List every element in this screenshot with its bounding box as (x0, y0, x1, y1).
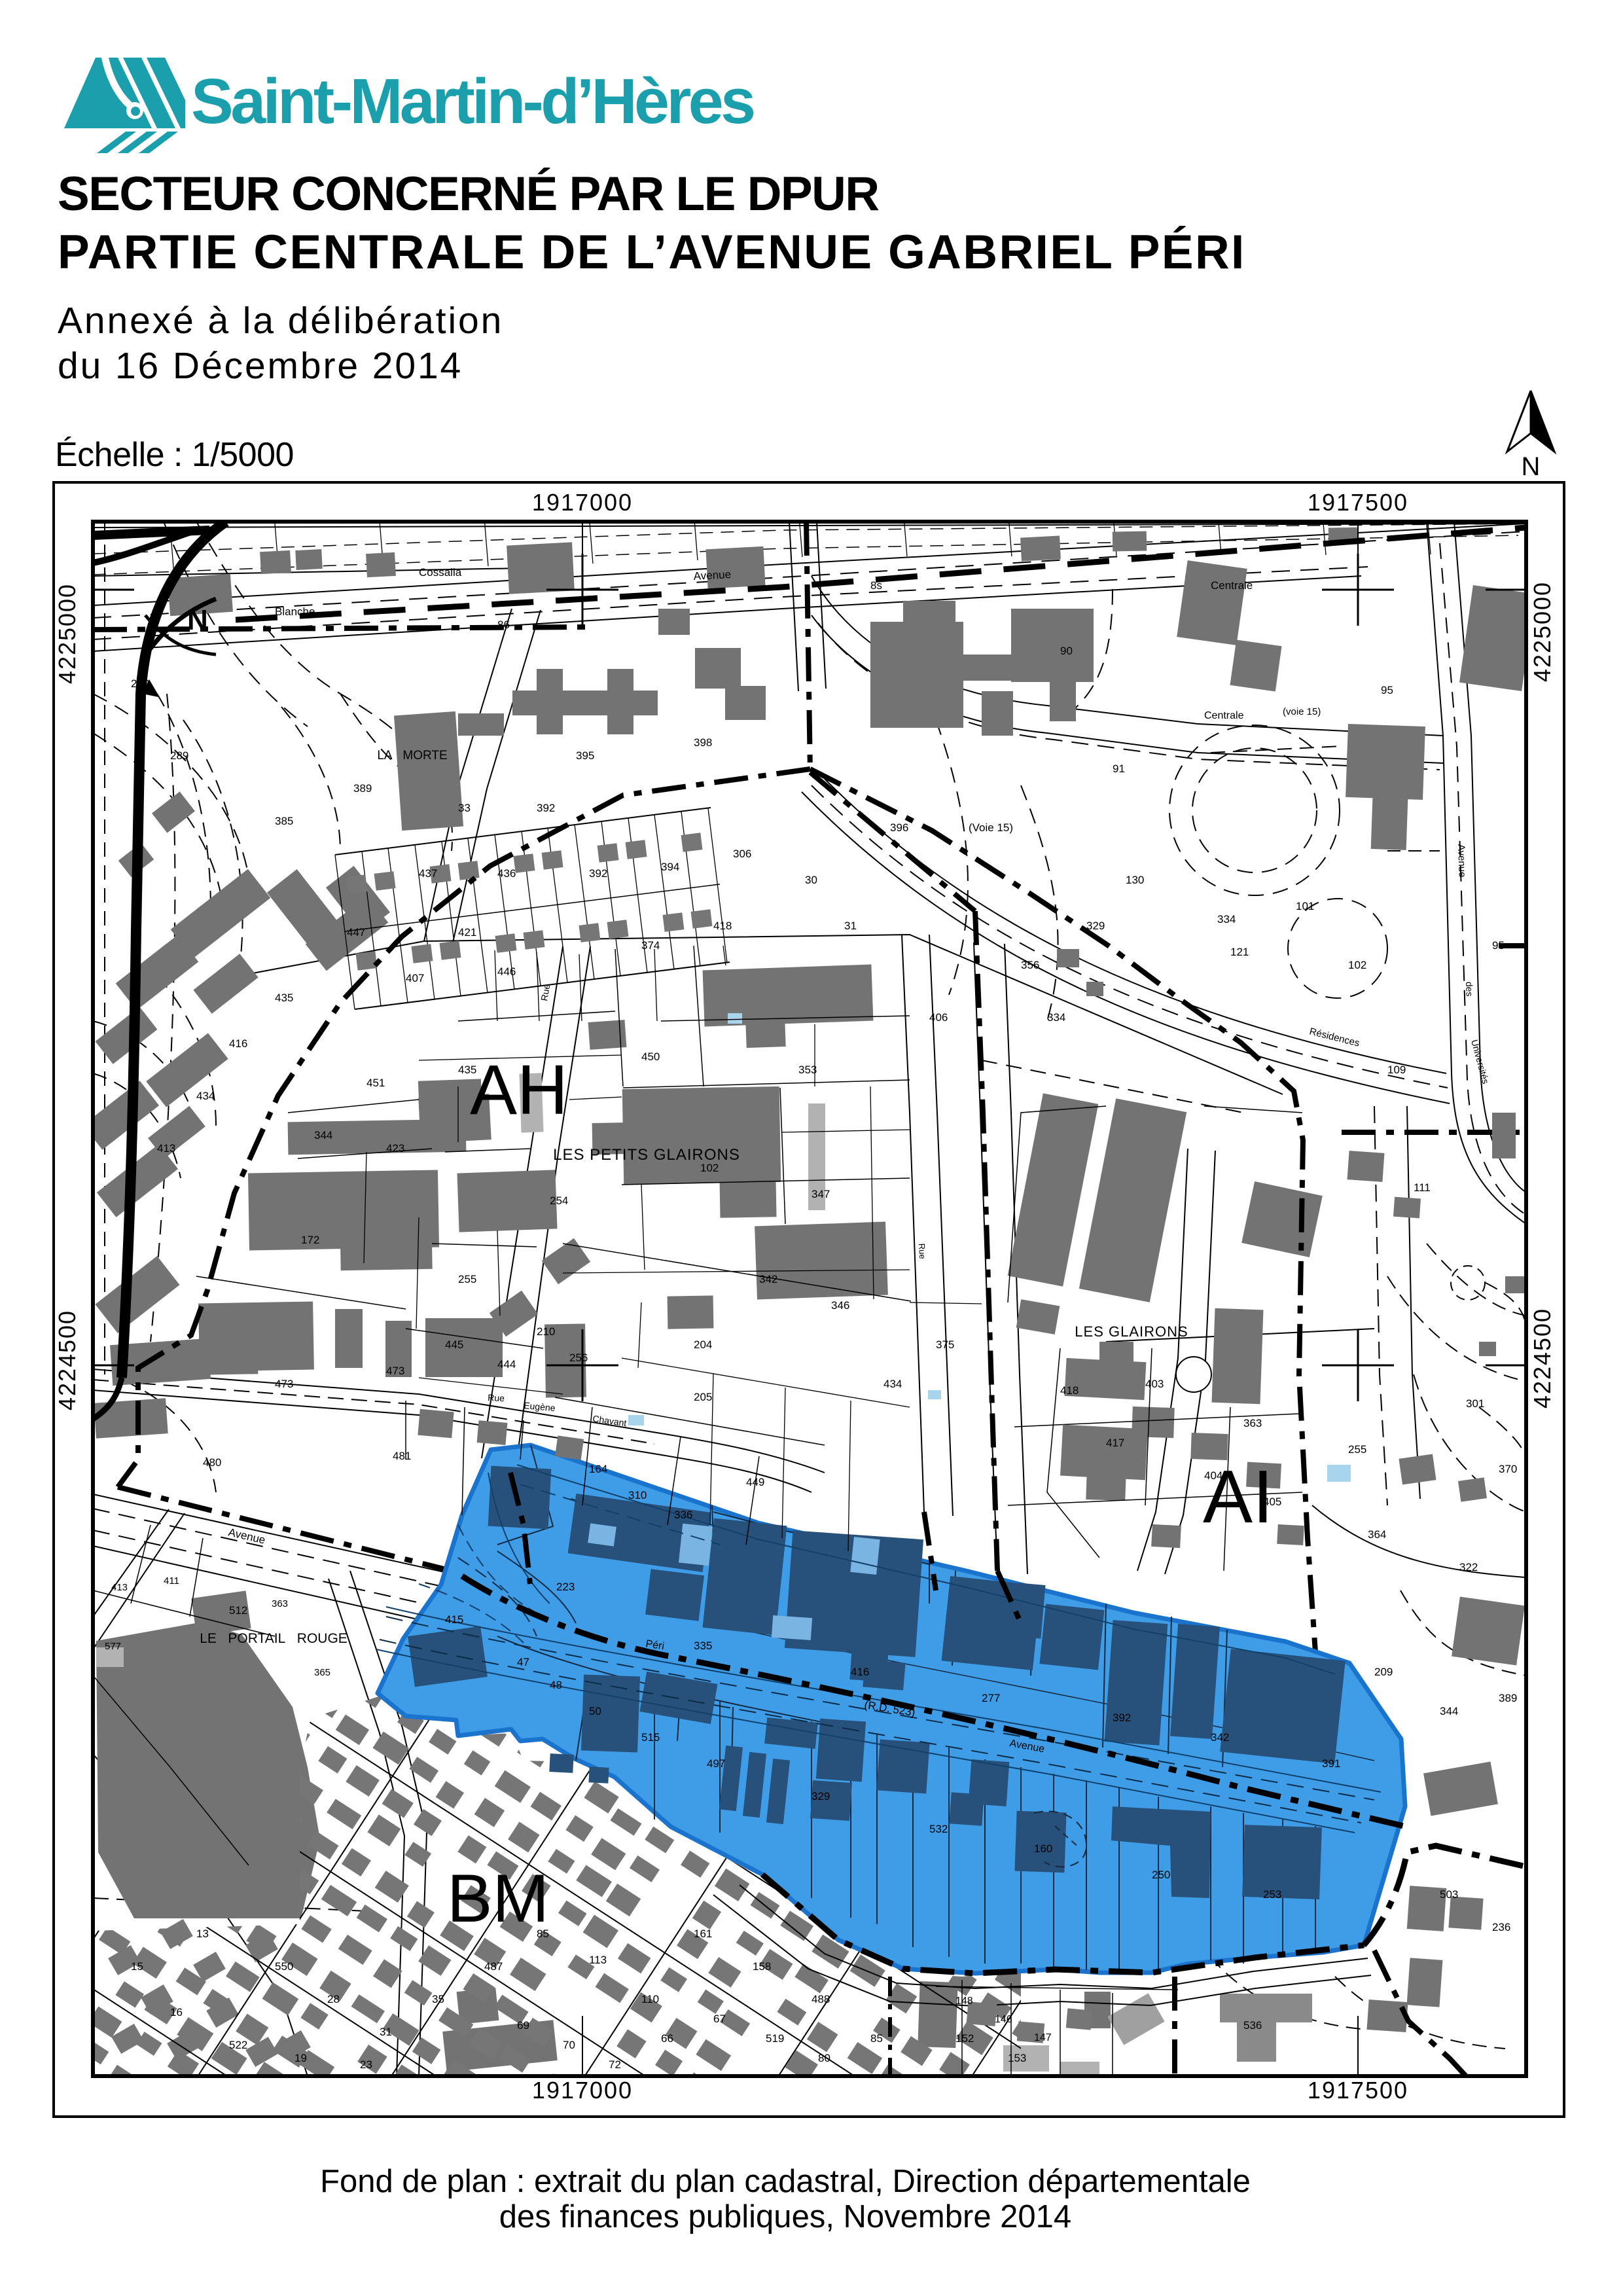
svg-text:160: 160 (1034, 1842, 1052, 1855)
svg-text:204: 204 (694, 1338, 712, 1351)
svg-text:515: 515 (641, 1731, 660, 1744)
svg-text:4224500: 4224500 (1529, 1308, 1556, 1408)
svg-text:446: 446 (497, 965, 516, 978)
svg-text:519: 519 (766, 2032, 784, 2045)
svg-text:310: 310 (628, 1489, 647, 1501)
svg-text:532: 532 (929, 1823, 948, 1835)
svg-text:436: 436 (497, 867, 516, 880)
svg-text:95: 95 (1492, 939, 1505, 952)
svg-text:577: 577 (105, 1641, 121, 1652)
svg-text:363: 363 (1243, 1417, 1262, 1429)
svg-text:15: 15 (131, 1960, 143, 1973)
svg-text:481: 481 (393, 1450, 411, 1462)
svg-text:Rue: Rue (488, 1392, 505, 1403)
svg-text:Annexé à la délibération: Annexé à la délibération (58, 300, 503, 342)
svg-text:161: 161 (694, 1928, 712, 1940)
svg-text:392: 392 (537, 802, 555, 814)
svg-text:Cossalia: Cossalia (419, 566, 462, 579)
svg-text:364: 364 (1368, 1528, 1386, 1541)
svg-text:152: 152 (955, 2032, 974, 2045)
svg-text:31: 31 (380, 2026, 392, 2038)
svg-text:342: 342 (1211, 1731, 1229, 1744)
svg-text:1917500: 1917500 (1308, 489, 1408, 516)
svg-text:256: 256 (569, 1352, 588, 1364)
svg-text:31: 31 (844, 920, 857, 932)
svg-text:254: 254 (550, 1194, 568, 1207)
svg-text:473: 473 (275, 1378, 293, 1390)
svg-text:LA MORTE: LA MORTE (377, 749, 447, 762)
svg-text:Fond de plan : extrait du plan: Fond de plan : extrait du plan cadastral… (320, 2164, 1251, 2199)
svg-text:512: 512 (229, 1604, 247, 1617)
svg-text:30: 30 (805, 874, 817, 886)
svg-text:8s: 8s (870, 579, 882, 592)
svg-text:522: 522 (229, 2039, 247, 2051)
svg-text:356: 356 (1021, 959, 1039, 971)
svg-text:435: 435 (275, 992, 293, 1004)
svg-text:223: 223 (556, 1581, 575, 1593)
svg-text:LES PETITS GLAIRONS: LES PETITS GLAIRONS (553, 1146, 740, 1164)
svg-text:1917500: 1917500 (1308, 2077, 1408, 2104)
svg-text:4224500: 4224500 (54, 1310, 80, 1410)
svg-text:33: 33 (458, 802, 471, 814)
svg-text:396: 396 (890, 821, 908, 834)
svg-text:121: 121 (1230, 946, 1249, 958)
svg-text:416: 416 (229, 1037, 247, 1050)
svg-text:347: 347 (811, 1188, 830, 1200)
svg-text:16: 16 (170, 2006, 183, 2018)
svg-text:48: 48 (550, 1679, 562, 1691)
svg-text:LE PORTAIL ROUGE: LE PORTAIL ROUGE (200, 1631, 348, 1646)
svg-text:449: 449 (746, 1476, 764, 1488)
svg-text:398: 398 (694, 736, 712, 749)
svg-text:(Voie 15): (Voie 15) (969, 821, 1013, 834)
svg-text:365: 365 (314, 1667, 330, 1678)
svg-text:85: 85 (537, 1928, 549, 1940)
svg-text:28: 28 (327, 1993, 340, 2005)
svg-text:374: 374 (641, 939, 660, 952)
svg-text:164: 164 (589, 1463, 607, 1475)
svg-text:158: 158 (753, 1960, 771, 1973)
svg-text:209: 209 (1374, 1666, 1393, 1678)
svg-text:210: 210 (537, 1325, 555, 1338)
svg-text:102: 102 (700, 1162, 719, 1174)
svg-text:375: 375 (936, 1338, 954, 1351)
svg-text:Centrale: Centrale (1211, 579, 1253, 592)
svg-text:113: 113 (589, 1954, 607, 1966)
svg-text:418: 418 (1060, 1384, 1079, 1397)
svg-text:Avenue: Avenue (693, 568, 731, 583)
svg-text:306: 306 (733, 848, 751, 860)
svg-text:277: 277 (982, 1692, 1000, 1704)
svg-text:329: 329 (1086, 920, 1105, 932)
svg-text:85: 85 (870, 2032, 883, 2045)
svg-text:416: 416 (851, 1666, 869, 1678)
svg-text:BM: BM (447, 1861, 549, 1937)
svg-text:353: 353 (798, 1064, 817, 1076)
svg-text:35: 35 (432, 1993, 444, 2005)
svg-text:147: 147 (1034, 2032, 1052, 2043)
svg-text:AH: AH (470, 1050, 568, 1129)
svg-text:80: 80 (818, 2052, 830, 2064)
svg-text:du 16 Décembre 2014: du 16 Décembre 2014 (58, 345, 463, 387)
svg-text:336: 336 (674, 1509, 692, 1521)
svg-text:413: 413 (111, 1582, 128, 1593)
svg-text:LES GLAIRONS: LES GLAIRONS (1075, 1323, 1188, 1340)
svg-text:322: 322 (1459, 1561, 1478, 1573)
svg-text:86: 86 (497, 619, 510, 631)
svg-text:487: 487 (484, 1960, 503, 1973)
svg-text:91: 91 (1113, 762, 1125, 775)
svg-text:392: 392 (1113, 1712, 1131, 1724)
svg-text:205: 205 (694, 1391, 712, 1403)
svg-text:413: 413 (157, 1142, 175, 1155)
svg-text:289: 289 (170, 749, 188, 762)
svg-text:403: 403 (1145, 1378, 1164, 1390)
svg-text:335: 335 (694, 1640, 712, 1652)
svg-text:N: N (1522, 452, 1541, 481)
svg-text:250: 250 (1152, 1869, 1170, 1881)
svg-text:363: 363 (272, 1598, 288, 1609)
svg-text:111: 111 (1414, 1181, 1431, 1194)
svg-text:395: 395 (576, 749, 594, 762)
svg-text:407: 407 (406, 972, 424, 984)
svg-text:423: 423 (386, 1142, 404, 1155)
svg-text:488: 488 (811, 1993, 830, 2005)
svg-text:Échelle : 1/5000: Échelle : 1/5000 (55, 436, 294, 474)
svg-text:391: 391 (1322, 1757, 1340, 1770)
svg-text:550: 550 (275, 1960, 293, 1973)
svg-text:417: 417 (1106, 1437, 1124, 1449)
svg-text:50: 50 (589, 1705, 601, 1717)
svg-text:255: 255 (1348, 1443, 1366, 1456)
svg-text:23: 23 (360, 2058, 372, 2071)
svg-text:253: 253 (1263, 1888, 1281, 1901)
svg-text:536: 536 (1243, 2019, 1262, 2032)
svg-text:Centrale: Centrale (1204, 710, 1244, 721)
svg-text:130: 130 (1126, 874, 1144, 886)
svg-text:389: 389 (1499, 1692, 1517, 1704)
svg-text:421: 421 (458, 926, 476, 939)
svg-text:236: 236 (1492, 1921, 1510, 1933)
svg-text:411: 411 (164, 1575, 179, 1587)
svg-text:47: 47 (517, 1656, 529, 1668)
svg-text:1917000: 1917000 (532, 489, 633, 516)
svg-text:418: 418 (713, 920, 732, 932)
svg-text:66: 66 (661, 2032, 673, 2045)
svg-text:451: 451 (366, 1077, 385, 1089)
svg-text:497: 497 (707, 1757, 725, 1770)
svg-text:406: 406 (929, 1011, 948, 1024)
svg-text:4225000: 4225000 (1529, 581, 1556, 682)
svg-text:102: 102 (1348, 959, 1366, 971)
svg-text:19: 19 (294, 2052, 307, 2064)
svg-text:67: 67 (713, 2013, 726, 2025)
svg-text:344: 344 (314, 1129, 332, 1141)
svg-text:290: 290 (131, 677, 149, 690)
svg-text:Blanche: Blanche (275, 605, 315, 618)
svg-text:334: 334 (1047, 1011, 1065, 1024)
svg-text:90: 90 (1060, 645, 1073, 657)
svg-text:153: 153 (1008, 2052, 1026, 2064)
svg-text:329: 329 (811, 1790, 830, 1803)
svg-text:255: 255 (458, 1273, 476, 1285)
svg-text:301: 301 (1466, 1397, 1484, 1410)
svg-text:SECTEUR CONCERNÉ PAR LE DPUR: SECTEUR CONCERNÉ PAR LE DPUR (58, 168, 879, 221)
svg-text:344: 344 (1440, 1705, 1458, 1717)
svg-text:450: 450 (641, 1050, 660, 1063)
svg-text:95: 95 (1381, 684, 1393, 696)
svg-text:480: 480 (203, 1456, 221, 1469)
svg-text:415: 415 (445, 1613, 463, 1626)
svg-text:PARTIE CENTRALE DE L’AVENUE GA: PARTIE CENTRALE DE L’AVENUE GABRIEL PÉRI (58, 226, 1246, 279)
svg-text:444: 444 (497, 1358, 516, 1371)
svg-text:109: 109 (1387, 1064, 1406, 1076)
svg-text:503: 503 (1440, 1888, 1458, 1901)
svg-text:447: 447 (347, 926, 365, 939)
svg-text:445: 445 (445, 1338, 463, 1351)
svg-text:334: 334 (1217, 913, 1236, 925)
svg-text:370: 370 (1499, 1463, 1517, 1475)
svg-text:1917000: 1917000 (532, 2077, 633, 2104)
svg-text:437: 437 (419, 867, 437, 880)
svg-text:(voie 15): (voie 15) (1283, 706, 1321, 717)
svg-text:405: 405 (1263, 1496, 1281, 1508)
svg-text:473: 473 (386, 1365, 404, 1377)
svg-text:385: 385 (275, 815, 293, 827)
svg-text:394: 394 (661, 861, 679, 873)
svg-text:4225000: 4225000 (54, 583, 80, 684)
svg-text:148: 148 (955, 1996, 973, 2007)
svg-text:434: 434 (883, 1378, 902, 1390)
svg-text:392: 392 (589, 867, 607, 880)
svg-text:101: 101 (1296, 900, 1314, 912)
svg-text:Avenue: Avenue (1455, 844, 1468, 878)
svg-text:72: 72 (609, 2058, 621, 2071)
svg-text:69: 69 (517, 2019, 529, 2032)
svg-text:des: des (1464, 982, 1475, 997)
svg-text:389: 389 (353, 782, 372, 795)
svg-text:346: 346 (831, 1299, 849, 1312)
svg-text:13: 13 (196, 1928, 209, 1940)
svg-text:110: 110 (641, 1993, 659, 2005)
svg-text:404: 404 (1204, 1469, 1222, 1482)
svg-text:des finances publiques, Novemb: des finances publiques, Novembre 2014 (499, 2199, 1071, 2234)
svg-text:435: 435 (458, 1064, 476, 1076)
svg-text:146: 146 (995, 2014, 1012, 2025)
svg-text:434: 434 (196, 1090, 215, 1102)
svg-text:Rue: Rue (917, 1243, 927, 1259)
svg-text:342: 342 (759, 1273, 777, 1285)
svg-text:172: 172 (301, 1234, 319, 1246)
svg-text:Saint-Martin-d’Hères: Saint-Martin-d’Hères (191, 65, 753, 137)
svg-text:70: 70 (563, 2039, 575, 2051)
